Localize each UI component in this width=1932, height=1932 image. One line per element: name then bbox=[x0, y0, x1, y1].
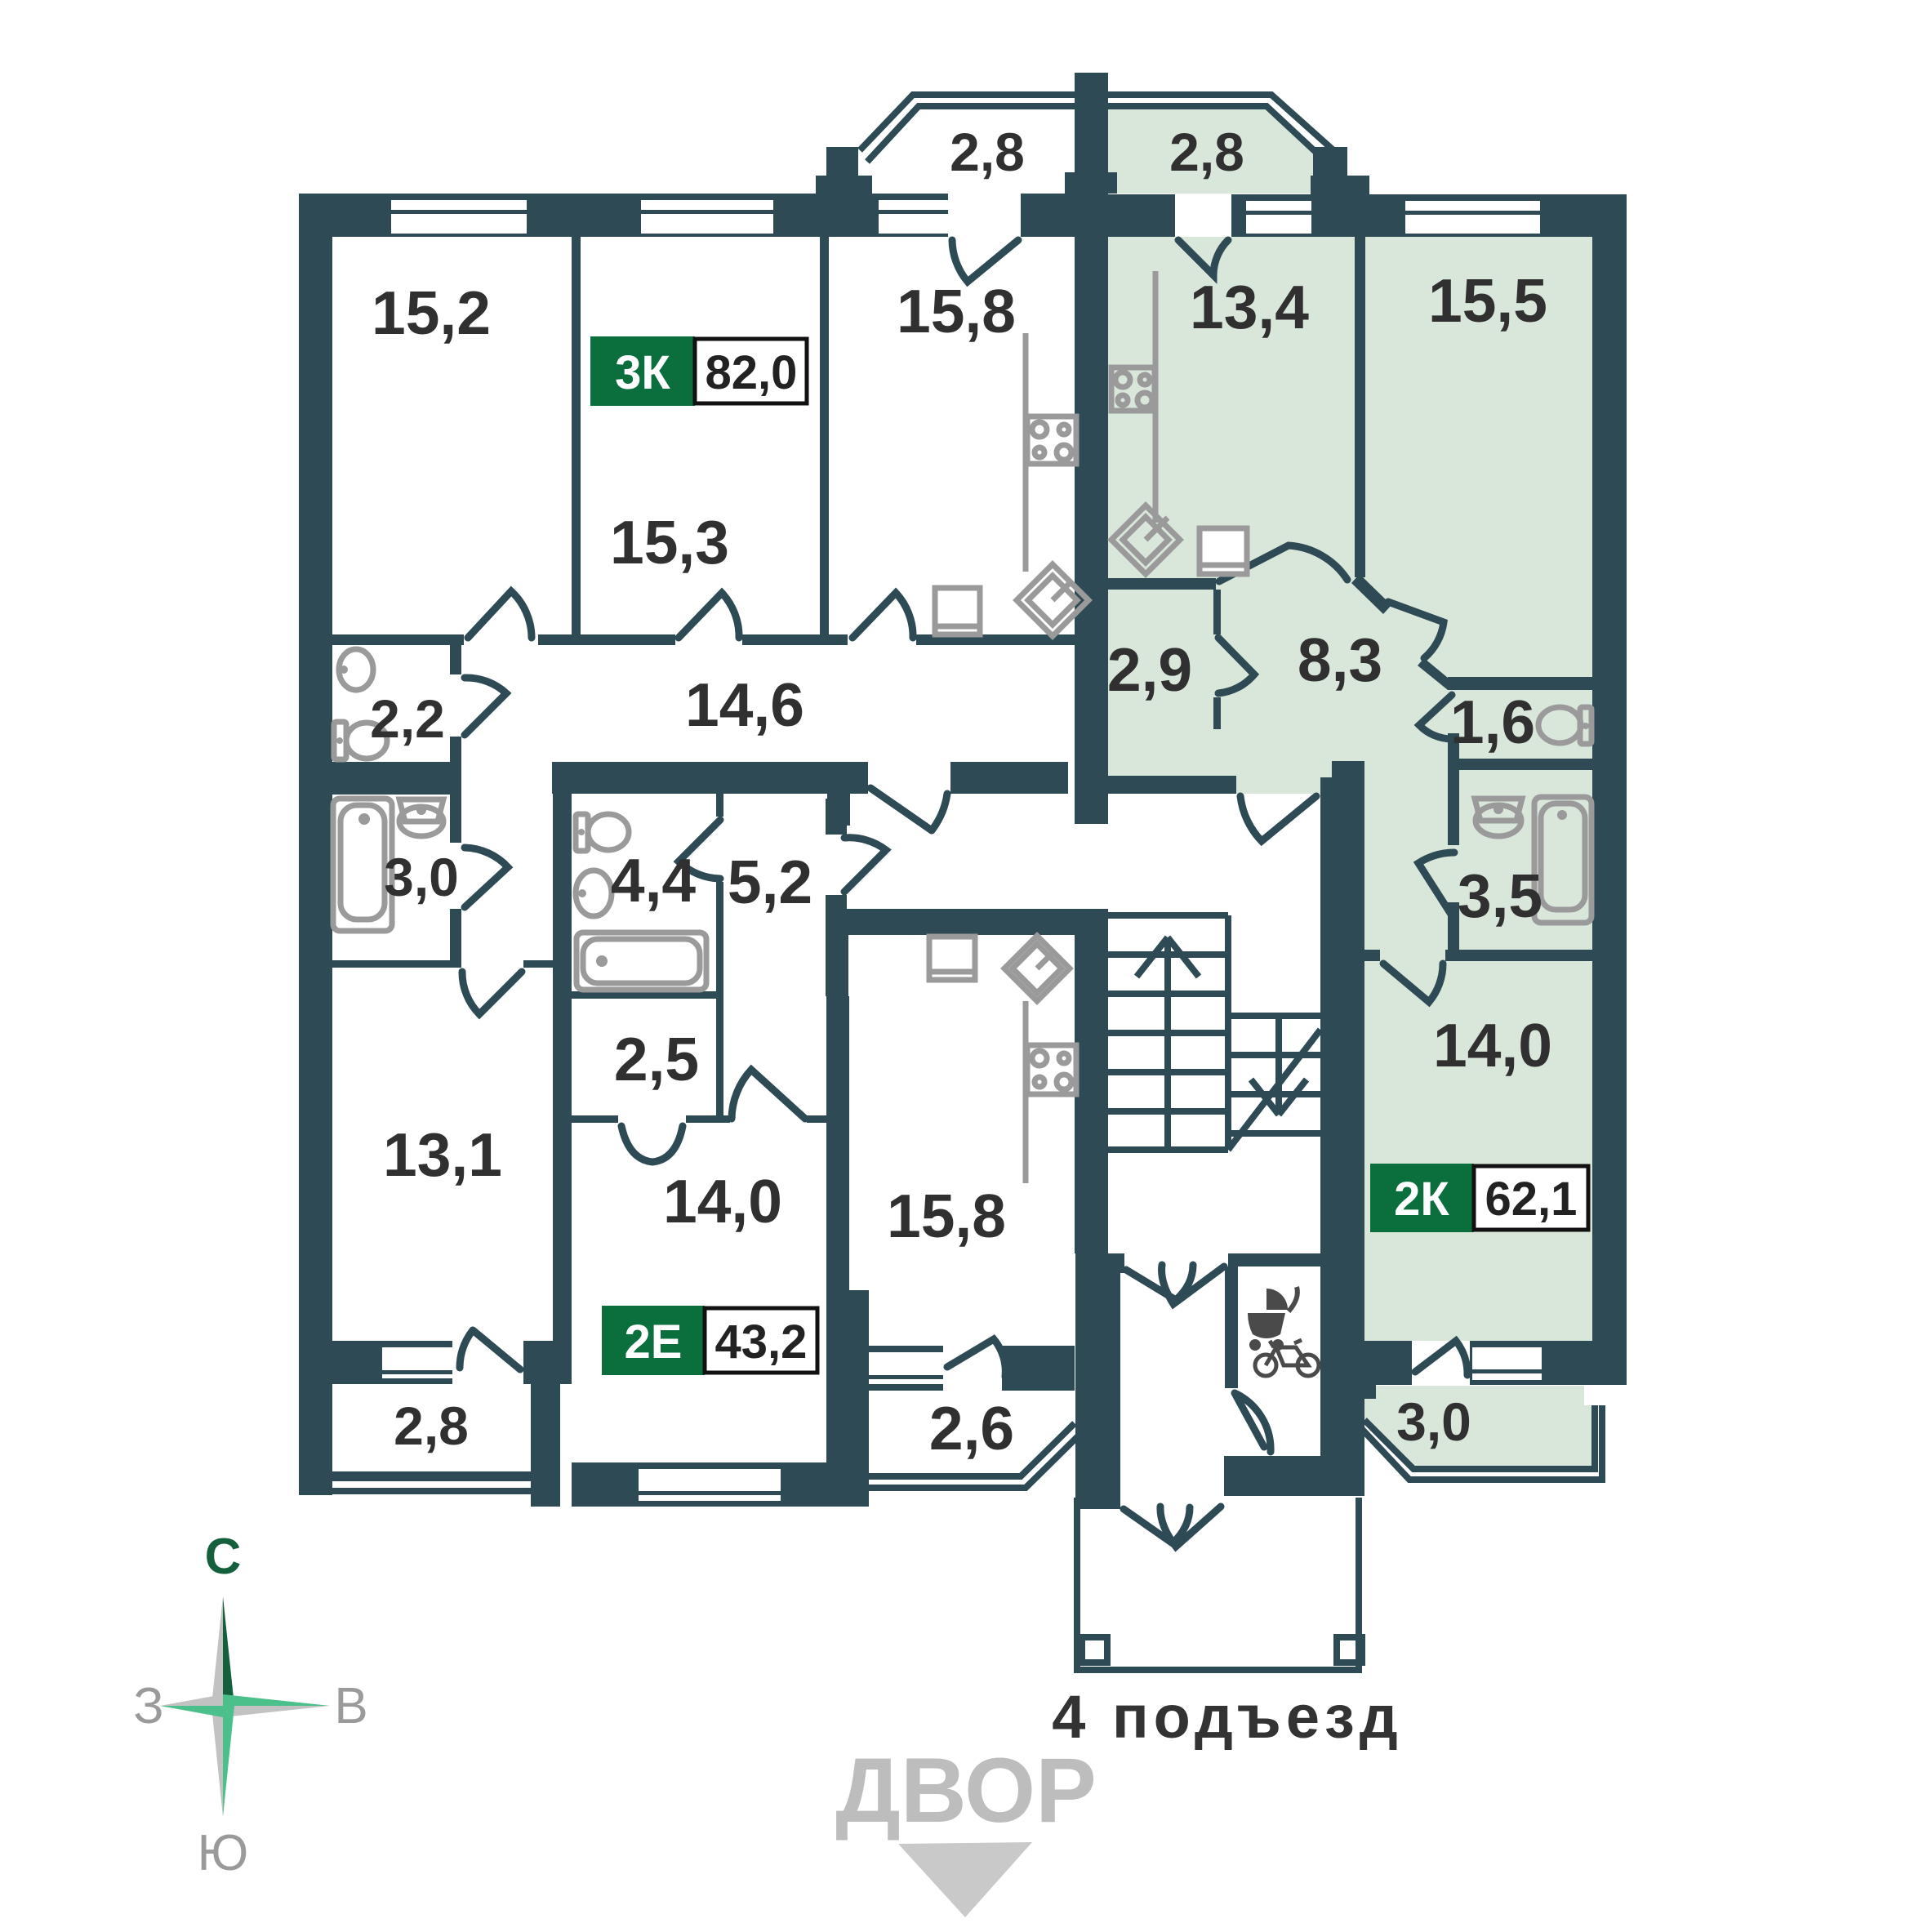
svg-text:2,8: 2,8 bbox=[950, 122, 1025, 182]
svg-text:2Е: 2Е bbox=[625, 1315, 683, 1369]
svg-text:82,0: 82,0 bbox=[706, 346, 798, 399]
svg-text:62,1: 62,1 bbox=[1485, 1173, 1578, 1226]
svg-text:ДВОР: ДВОР bbox=[835, 1739, 1097, 1841]
svg-text:4,4: 4,4 bbox=[611, 846, 697, 915]
svg-text:2К: 2К bbox=[1394, 1173, 1449, 1226]
svg-text:15,5: 15,5 bbox=[1428, 266, 1547, 335]
svg-text:4 подъезд: 4 подъезд bbox=[1052, 1683, 1403, 1751]
svg-text:2,5: 2,5 bbox=[614, 1025, 699, 1093]
svg-text:2,8: 2,8 bbox=[394, 1396, 469, 1456]
svg-text:2,2: 2,2 bbox=[370, 688, 445, 749]
svg-text:15,8: 15,8 bbox=[897, 277, 1016, 345]
svg-text:2,9: 2,9 bbox=[1107, 635, 1192, 704]
svg-text:5,2: 5,2 bbox=[728, 848, 812, 916]
svg-text:2,6: 2,6 bbox=[929, 1394, 1014, 1462]
svg-text:3,0: 3,0 bbox=[1396, 1391, 1471, 1452]
svg-text:14,6: 14,6 bbox=[685, 670, 804, 739]
svg-text:С: С bbox=[205, 1529, 242, 1585]
svg-text:15,8: 15,8 bbox=[887, 1182, 1006, 1250]
svg-text:14,0: 14,0 bbox=[663, 1167, 782, 1235]
svg-text:15,2: 15,2 bbox=[372, 278, 491, 347]
svg-text:13,1: 13,1 bbox=[383, 1120, 502, 1189]
svg-text:8,3: 8,3 bbox=[1298, 625, 1382, 694]
svg-text:Ю: Ю bbox=[198, 1825, 249, 1881]
svg-text:1,6: 1,6 bbox=[1450, 688, 1535, 756]
svg-text:14,0: 14,0 bbox=[1433, 1011, 1552, 1080]
svg-text:13,4: 13,4 bbox=[1190, 273, 1309, 341]
svg-text:43,2: 43,2 bbox=[715, 1315, 808, 1369]
svg-text:3К: 3К bbox=[615, 346, 670, 399]
svg-text:В: В bbox=[334, 1678, 367, 1734]
svg-text:2,8: 2,8 bbox=[1169, 122, 1244, 182]
svg-text:З: З bbox=[133, 1678, 163, 1734]
svg-text:15,3: 15,3 bbox=[610, 508, 729, 576]
svg-text:3,0: 3,0 bbox=[384, 847, 459, 907]
svg-text:3,5: 3,5 bbox=[1458, 861, 1542, 930]
